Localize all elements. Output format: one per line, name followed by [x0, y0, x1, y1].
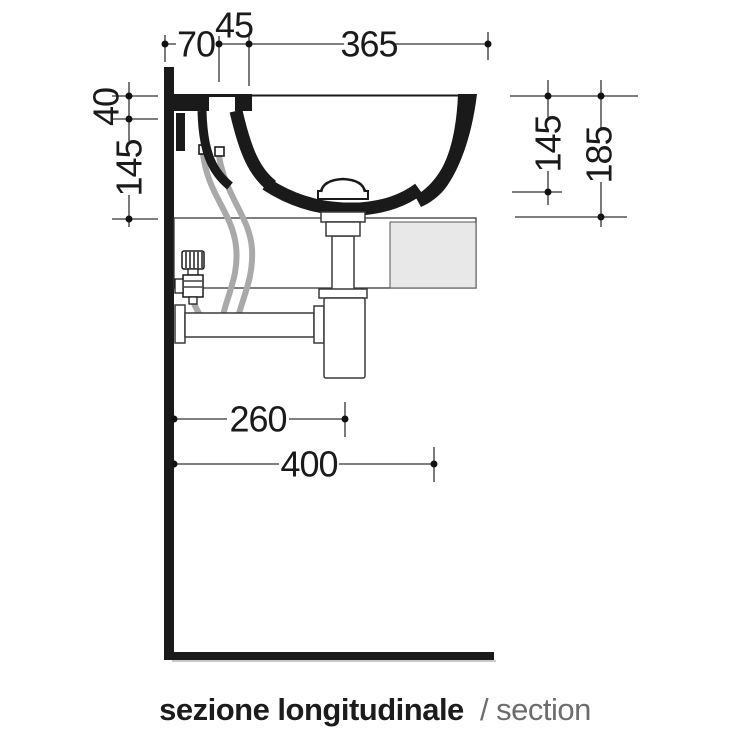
dim-dot [171, 461, 178, 468]
caption: sezione longitudinale / section [0, 692, 750, 728]
pipe-collar [314, 306, 324, 343]
hose-connector [215, 147, 224, 156]
dim-label-70: 70 [177, 24, 215, 65]
dim-dot [126, 93, 133, 100]
dim-label-145-right: 145 [528, 115, 569, 172]
trap-body [324, 298, 365, 378]
basin-back-inner-wall [236, 111, 272, 186]
dim-label-145-left: 145 [109, 139, 150, 196]
valve-bottom-port [189, 297, 197, 304]
dim-left-group: 40 145 [86, 82, 159, 227]
drain-plug-brim [318, 191, 368, 199]
drawing-page: 70 45 365 40 145 145 185 [0, 0, 750, 750]
dim-label-260: 260 [229, 399, 286, 440]
floor-section [164, 652, 494, 660]
caption-english: / section [480, 692, 591, 727]
caption-italian: sezione longitudinale [159, 692, 464, 727]
trap-top-collar [319, 289, 367, 298]
dim-dot [162, 41, 169, 48]
dim-top-group: 70 45 365 [162, 5, 492, 87]
dim-label-400: 400 [280, 444, 337, 485]
dim-dot [342, 416, 349, 423]
tap-hole [209, 97, 235, 111]
technical-drawing: 70 45 365 40 145 145 185 [0, 0, 750, 750]
dim-dot [598, 214, 605, 221]
dim-label-185: 185 [579, 126, 620, 183]
dim-dot [126, 116, 133, 123]
wall-section [164, 67, 174, 660]
dim-label-45: 45 [215, 5, 253, 46]
dim-dot [545, 93, 552, 100]
dim-dot [431, 461, 438, 468]
drain-plug-dome [321, 179, 365, 192]
drain-flange [321, 212, 365, 222]
valve-body [183, 275, 203, 297]
waste-pipe [185, 313, 314, 337]
floor-shadow [172, 660, 496, 662]
dim-dot [171, 416, 178, 423]
dim-label-365: 365 [340, 24, 397, 65]
valve-wall-outlet [175, 279, 183, 293]
dim-bottom-group: 260 400 [171, 399, 438, 485]
understructure [174, 218, 476, 288]
wall-bracket [176, 113, 185, 151]
dim-label-40: 40 [86, 88, 127, 126]
dim-dot [126, 216, 133, 223]
dim-dot [598, 93, 605, 100]
dim-right-group: 145 185 [510, 80, 638, 227]
dim-dot [545, 189, 552, 196]
dim-dot [485, 41, 492, 48]
trap-tailpipe [332, 236, 354, 294]
drain-collar [326, 222, 360, 236]
valve-stem [188, 269, 198, 275]
basin-front-wall [415, 94, 477, 207]
bracket-panel [390, 222, 476, 288]
pipe-wall-flange [175, 305, 185, 343]
